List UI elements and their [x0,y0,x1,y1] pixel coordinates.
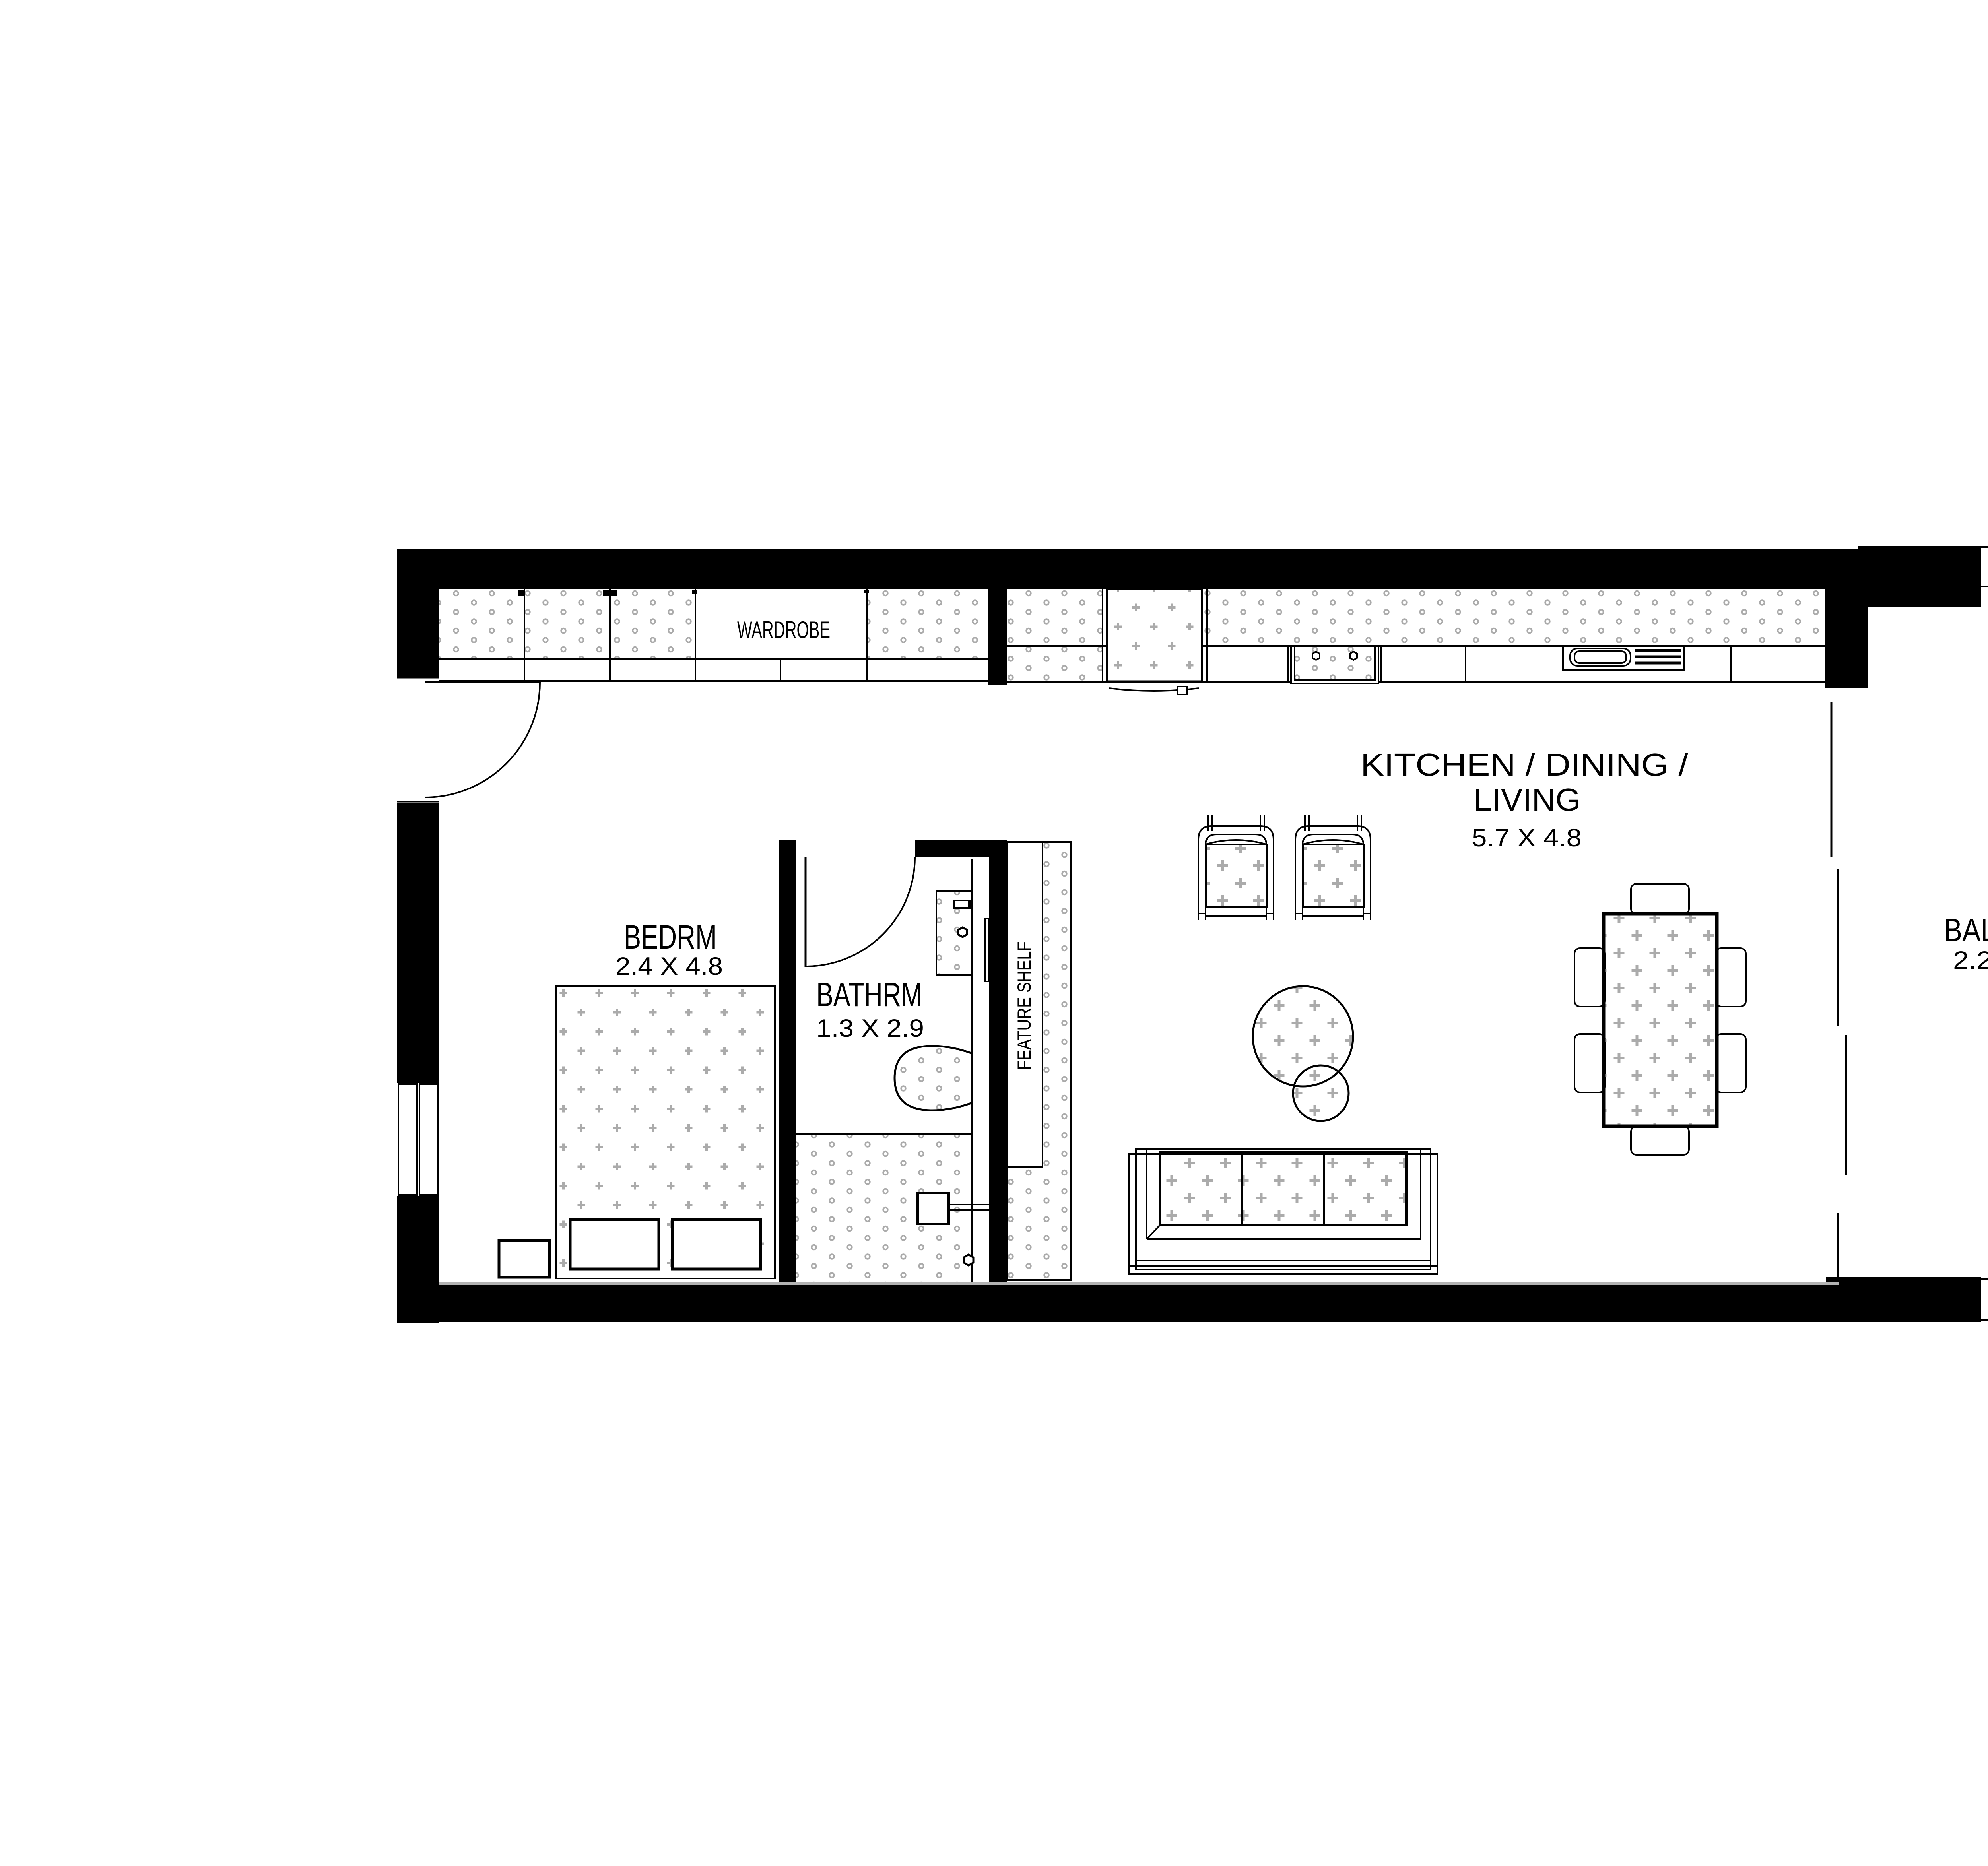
svg-text:BALCONY: BALCONY [1944,912,1988,948]
svg-text:WARDROBE: WARDROBE [737,617,830,643]
svg-text:KITCHEN / DINING /: KITCHEN / DINING / [1361,747,1689,782]
svg-text:LIVING: LIVING [1474,782,1581,817]
svg-text:BEDRM: BEDRM [624,918,717,956]
svg-text:1.3 X 2.9: 1.3 X 2.9 [816,1014,924,1042]
svg-text:2.4 X 4.8: 2.4 X 4.8 [615,952,723,980]
svg-text:2.2 x 4.8: 2.2 x 4.8 [1953,947,1988,974]
svg-text:5.7 X 4.8: 5.7 X 4.8 [1472,824,1582,852]
svg-text:FEATURE SHELF: FEATURE SHELF [1013,941,1035,1070]
svg-text:BATHRM: BATHRM [816,976,922,1013]
